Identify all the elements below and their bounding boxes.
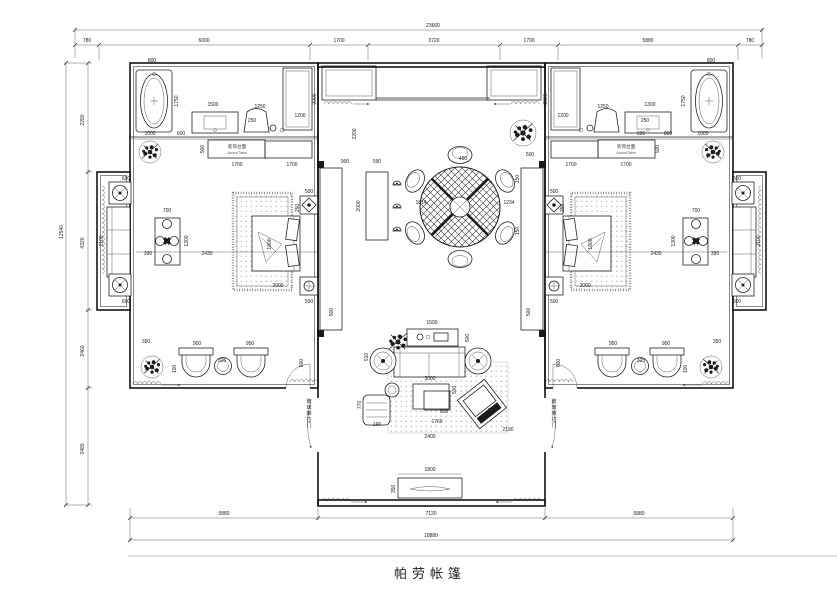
dim-text: 1500 <box>207 102 218 108</box>
glass-door-opening <box>315 398 322 452</box>
dim-text: 1700 <box>231 162 242 168</box>
pillow <box>286 244 300 266</box>
daybed <box>107 207 130 277</box>
dim-text: 350 <box>391 485 397 494</box>
dim-text: 500 <box>452 386 458 395</box>
stool <box>385 383 399 397</box>
dim-text: 600 <box>733 176 742 182</box>
dim-text: 3000 <box>424 376 435 382</box>
dim-text: 250 <box>248 118 257 124</box>
dim-text: 390 <box>144 251 153 257</box>
left-seg: 2460 <box>80 345 86 356</box>
sconce-icon <box>393 181 401 185</box>
dim-text: 250 <box>295 204 301 213</box>
dim-text: 玻璃推拉门 <box>551 398 556 429</box>
dim-text: 500 <box>550 299 559 305</box>
top-seg: 780 <box>746 38 755 44</box>
dim-text: 700 <box>692 208 701 214</box>
round-side-table <box>465 348 491 374</box>
dim-text: 500 <box>305 299 314 305</box>
dim-text: 600 <box>122 176 131 182</box>
top-total-dim: 23660 <box>426 23 440 29</box>
dim-text: 1800 <box>267 238 273 249</box>
curtain-squiggle <box>133 382 161 384</box>
dim-text: 350 <box>713 339 722 345</box>
dim-text: 770 <box>357 401 363 410</box>
console-table <box>366 172 388 240</box>
dim-text: 700 <box>163 208 172 214</box>
dim-text: 2000 <box>543 93 549 104</box>
dim-text: 2200 <box>352 128 358 139</box>
curtain-squiggle <box>324 102 352 104</box>
dim-text: 900 <box>193 341 202 347</box>
dim-text: 1300 <box>671 235 677 246</box>
bathtub <box>136 70 172 132</box>
dim-text: 2000 <box>579 283 590 289</box>
accent-table-label-cn: 装饰台面 <box>617 143 636 150</box>
top-seg: 1700 <box>333 38 344 44</box>
hall-bottom-wall <box>318 500 545 506</box>
dim-text: 500 <box>550 189 559 195</box>
top-seg: 3720 <box>428 38 439 44</box>
dim-text: 800 <box>664 131 673 137</box>
plant <box>141 356 163 378</box>
bottom-seg: 5880 <box>218 511 229 517</box>
bottom-seg: 5880 <box>633 511 644 517</box>
floor-plant <box>389 333 407 350</box>
sconce-icon <box>393 204 401 208</box>
dim-text: 1750 <box>174 95 180 106</box>
dim-text: 600 <box>556 359 562 368</box>
dim-text: 600 <box>733 299 742 305</box>
right-wing <box>487 63 766 505</box>
side-table <box>109 274 131 296</box>
dim-text: 玻璃推拉门 <box>306 398 311 429</box>
dim-text: 1800 <box>588 238 594 249</box>
coffee-table <box>413 384 450 410</box>
dim-text: 1760 <box>431 419 442 425</box>
dim-text: 100 <box>683 365 689 374</box>
dim-text: 325 <box>218 358 227 364</box>
dim-text: 1700 <box>286 162 297 168</box>
dim-text: 250 <box>560 204 566 213</box>
top-seg: 780 <box>83 38 92 44</box>
room-labels: 装饰台面 Accent Table 装饰台面 Accent Table <box>227 143 635 155</box>
dim-text: 500 <box>305 189 314 195</box>
dim-text: 1000 <box>697 131 708 137</box>
bed <box>252 216 300 271</box>
top-seg: 5880 <box>642 38 653 44</box>
wardrobe-strip <box>320 168 342 330</box>
left-wing <box>97 63 376 505</box>
dim-text: 450 <box>459 156 468 162</box>
side-table <box>109 182 131 204</box>
dim-text: 1000 <box>144 131 155 137</box>
dim-text: 250 <box>641 118 650 124</box>
vanity-console <box>192 112 238 133</box>
dim-text: 2190 <box>502 427 513 433</box>
round-side-table <box>370 348 396 374</box>
armchair <box>363 395 390 425</box>
sofa <box>394 347 465 377</box>
dim-text: 1700 <box>620 162 631 168</box>
dim-text: 950 <box>488 408 497 414</box>
dim-text: 1250 <box>597 104 608 110</box>
dim-text: 1750 <box>681 95 687 106</box>
dim-text: 1250 <box>254 104 265 110</box>
dim-text: 500 <box>465 334 471 343</box>
drawing-title: 帕劳帐篷 <box>394 566 466 582</box>
dim-text: 510 <box>364 353 370 362</box>
dim-text: 1300 <box>644 102 655 108</box>
pillow <box>286 218 300 240</box>
lounge-chair <box>234 348 268 377</box>
plant <box>139 141 161 163</box>
accent-table-label-en: Accent Table <box>227 151 246 155</box>
dim-text: 900 <box>341 159 350 165</box>
dim-text: 600 <box>637 131 646 137</box>
dim-text: 100 <box>172 365 178 374</box>
dim-text: 1700 <box>565 162 576 168</box>
dining-set <box>402 147 519 268</box>
dim-text: 2430 <box>650 251 661 257</box>
dim-text: 2000 <box>272 283 283 289</box>
hall-recess-wall <box>376 98 490 100</box>
breakfast-table <box>155 218 180 265</box>
accent-table <box>208 140 265 158</box>
dim-text: 1800 <box>424 467 435 473</box>
dim-text: 600 <box>122 299 131 305</box>
hall-top-wall <box>318 63 545 67</box>
dim-text: 2000 <box>312 93 318 104</box>
basin <box>270 125 276 131</box>
dim-text: 600 <box>177 131 186 137</box>
dim-text: 800 <box>707 58 716 64</box>
floor-plan-sheet: 23660 780 6000 1700 3720 1700 5880 780 2… <box>0 0 837 592</box>
dim-text: 500 <box>526 152 535 158</box>
left-seg: 2280 <box>80 114 86 125</box>
dim-text: 1200 <box>557 113 568 119</box>
floor-plan-canvas: 23660 780 6000 1700 3720 1700 5880 780 2… <box>0 0 837 592</box>
bottom-total-dim: 18880 <box>424 533 438 539</box>
dim-text: 500 <box>440 409 449 415</box>
dim-text: 590 <box>373 159 382 165</box>
dim-text: 1300 <box>184 235 190 246</box>
lounge-chair <box>179 348 213 377</box>
dim-text: 900 <box>662 341 671 347</box>
left-seg: 3480 <box>80 443 86 454</box>
plant <box>510 120 536 146</box>
dim-text: 350 <box>142 339 151 345</box>
sofa-back-console <box>407 329 458 346</box>
dim-text: 2400 <box>424 434 435 440</box>
dim-text: 2430 <box>201 251 212 257</box>
left-seg: 4320 <box>80 237 86 248</box>
dim-text: 390 <box>711 251 720 257</box>
dim-text: 2100 <box>99 235 105 246</box>
accent-table-label-en: Accent Table <box>616 151 635 155</box>
dim-text: 2100 <box>756 235 762 246</box>
slatted-cabinet <box>265 141 312 158</box>
dim-text: 500 <box>526 308 532 317</box>
dim-text: 190 <box>373 422 382 428</box>
shower-grid <box>283 68 312 130</box>
left-total-dim: 12540 <box>59 225 65 239</box>
bench <box>398 478 462 498</box>
dim-text: 325 <box>637 358 646 364</box>
dim-text: 150 <box>515 227 521 236</box>
dim-text: 1500 <box>426 320 437 326</box>
dim-text: 1200 <box>294 113 305 119</box>
dim-text: 2000 <box>356 200 362 211</box>
top-seg: 1700 <box>523 38 534 44</box>
top-seg: 6000 <box>198 38 209 44</box>
dim-text: 500 <box>655 145 661 154</box>
accent-table-label-cn: 装饰台面 <box>228 143 247 150</box>
hall-closet <box>322 66 376 100</box>
dim-text: 950 <box>246 341 255 347</box>
dim-text: 950 <box>609 341 618 347</box>
door-opening <box>286 385 310 391</box>
dim-text: 150 <box>515 175 521 184</box>
dim-text: 500 <box>200 145 206 154</box>
dim-text: 1234 <box>503 200 514 206</box>
sconce-icon <box>393 227 401 231</box>
bottom-seg: 7120 <box>425 511 436 517</box>
dim-text: 500 <box>329 308 335 317</box>
dim-text: 1814 <box>415 200 426 206</box>
curtain-squiggle <box>290 380 318 382</box>
dim-text: 600 <box>299 359 305 368</box>
dim-text: 800 <box>148 58 157 64</box>
